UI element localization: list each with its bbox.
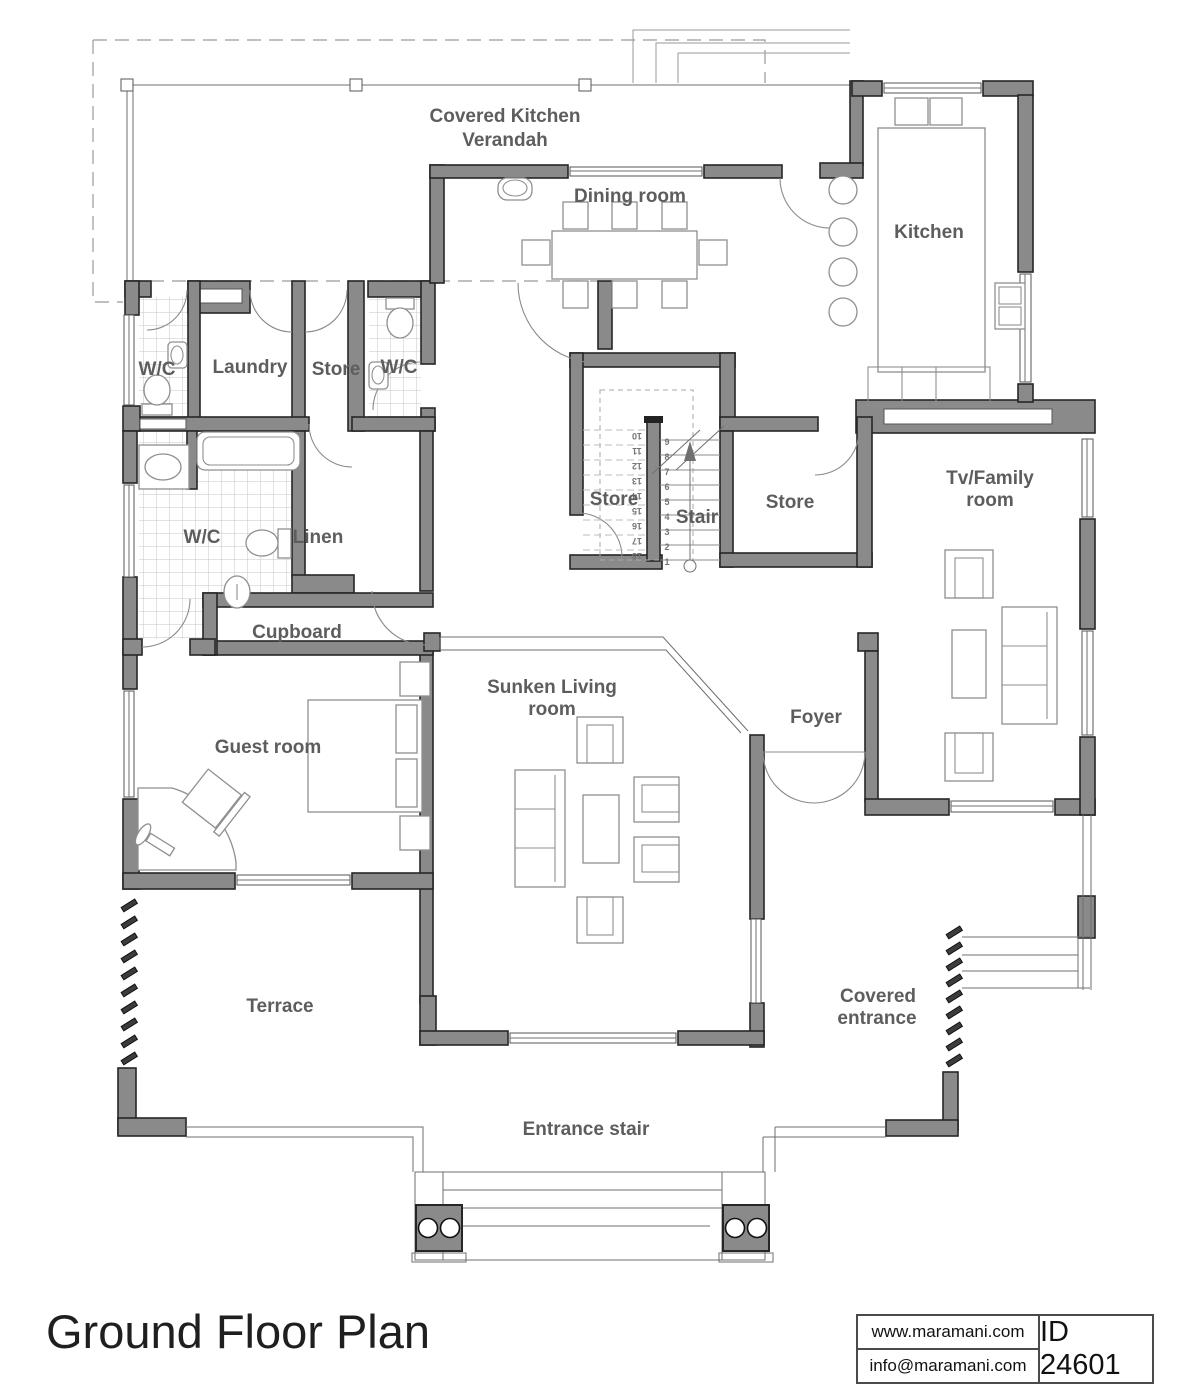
entrance-column-pedestal xyxy=(719,1205,773,1262)
verandah-column xyxy=(121,79,133,91)
wall-segment xyxy=(570,353,583,515)
wall-segment xyxy=(857,417,872,567)
stair-number: 17 xyxy=(632,536,642,546)
stair-number: 10 xyxy=(632,431,642,441)
wall-segment xyxy=(190,639,215,655)
door-arc xyxy=(250,290,292,332)
wall-cap xyxy=(644,416,663,423)
wall-segment xyxy=(352,873,433,889)
window xyxy=(951,801,1053,812)
wall-segment xyxy=(1080,737,1095,815)
verandah-column xyxy=(579,79,591,91)
floor-plan-page: 1 2 3 4 5 6 7 8 9 10 11 12 13 14 15 16 1… xyxy=(0,0,1200,1399)
label-dining-room: Dining room xyxy=(574,186,686,207)
label-guest-room: Guest room xyxy=(215,737,322,758)
wall-segment xyxy=(118,1118,186,1136)
entrance-column-pedestal xyxy=(412,1205,466,1262)
email-link: info@maramani.com xyxy=(858,1350,1038,1382)
toilet xyxy=(142,375,172,415)
label-stair: Stair xyxy=(676,507,719,528)
tv-cabinet-niche xyxy=(884,409,1052,424)
label-laundry: Laundry xyxy=(213,357,288,378)
window xyxy=(570,167,702,176)
website-link: www.maramani.com xyxy=(858,1316,1038,1350)
wall-segment xyxy=(188,281,200,431)
coffee-table xyxy=(952,630,986,698)
label-wc-top-left: W/C xyxy=(139,359,176,380)
wall-segment xyxy=(720,431,733,567)
label-covered-kitchen-verandah: Covered Kitchen xyxy=(430,106,581,127)
entrance-pier xyxy=(1078,896,1095,938)
wall-segment xyxy=(420,431,433,591)
stair-number: 16 xyxy=(632,521,642,531)
door-arc xyxy=(309,424,352,467)
wall-segment xyxy=(125,281,139,315)
window xyxy=(1082,631,1093,735)
stair-number: 18 xyxy=(632,551,642,561)
wall-segment xyxy=(424,633,440,651)
label-store-right: Store xyxy=(766,492,815,513)
stair-number: 12 xyxy=(632,461,642,471)
label-sunken-living-room: Sunken Living xyxy=(487,677,617,698)
wall-segment xyxy=(983,81,1033,96)
wall-segment xyxy=(420,1031,508,1045)
verandah-column xyxy=(350,79,362,91)
wall-segment xyxy=(348,281,364,431)
wall-segment xyxy=(123,639,142,655)
window xyxy=(510,1033,676,1043)
label-store-under-stair: Store xyxy=(590,489,639,510)
bidet xyxy=(224,576,250,608)
wall-segment xyxy=(704,165,782,178)
dining-sink xyxy=(498,178,532,200)
wall-segment xyxy=(886,1120,958,1136)
wall-segment xyxy=(865,651,878,801)
wall-segment xyxy=(598,281,612,349)
label-covered-entrance: Covered xyxy=(840,986,916,1007)
label-cupboard: Cupboard xyxy=(252,622,342,643)
label-terrace: Terrace xyxy=(246,996,313,1017)
stair-number: 9 xyxy=(664,437,669,447)
window xyxy=(237,875,350,885)
bathtub xyxy=(197,432,300,470)
armchair xyxy=(634,837,679,882)
entrance-edge-hatching xyxy=(946,926,962,1067)
wall-segment xyxy=(352,417,435,431)
floor-plan-drawing: 1 2 3 4 5 6 7 8 9 10 11 12 13 14 15 16 1… xyxy=(0,0,1200,1296)
entrance-double-door xyxy=(763,752,865,803)
plan-info-box: www.maramani.com info@maramani.com ID 24… xyxy=(856,1314,1154,1384)
wall-segment xyxy=(678,1031,764,1045)
wall-segment xyxy=(858,633,878,651)
sofa xyxy=(1002,607,1057,724)
wall-segment xyxy=(203,641,433,655)
wall-segment xyxy=(430,165,568,178)
wall-segment xyxy=(865,799,949,815)
toilet xyxy=(246,529,291,558)
wall-segment xyxy=(421,281,435,364)
label-entrance-stair: Entrance stair xyxy=(523,1119,650,1140)
label-linen: Linen xyxy=(293,527,344,548)
wall-segment xyxy=(123,431,137,483)
armchair xyxy=(945,550,993,598)
armchair xyxy=(577,717,623,763)
stair-number: 2 xyxy=(664,542,669,552)
door-arc xyxy=(815,431,859,475)
wall-segment xyxy=(123,873,235,889)
label-foyer: Foyer xyxy=(790,707,842,728)
label-tv-family-room: Tv/Family xyxy=(946,468,1034,489)
stair-number: 4 xyxy=(664,512,669,522)
label-wc-main: W/C xyxy=(184,527,221,548)
coffee-table xyxy=(583,795,619,863)
wall-segment xyxy=(1018,384,1033,402)
desk xyxy=(132,766,250,870)
stair-number: 8 xyxy=(664,452,669,462)
stair-number: 13 xyxy=(632,476,642,486)
wall-segment xyxy=(570,353,735,367)
armchair xyxy=(945,733,993,781)
dining-table xyxy=(522,202,727,308)
bed xyxy=(308,662,430,850)
wall-segment xyxy=(123,406,140,431)
armchair xyxy=(634,777,679,822)
terrace-edge-hatching xyxy=(121,899,137,1065)
wall-segment xyxy=(1080,519,1095,629)
label-covered-entrance: entrance xyxy=(837,1008,916,1029)
stair-number: 3 xyxy=(664,527,669,537)
wall-segment xyxy=(123,577,137,689)
wall-segment xyxy=(852,81,882,96)
window xyxy=(124,315,134,405)
armchair xyxy=(577,897,623,943)
wall-segment xyxy=(292,281,305,431)
label-kitchen: Kitchen xyxy=(894,222,964,243)
window xyxy=(751,919,761,1003)
stair-number: 1 xyxy=(664,557,669,567)
wall-segment xyxy=(292,575,354,593)
stair-number: 6 xyxy=(664,482,669,492)
contact-info: www.maramani.com info@maramani.com xyxy=(858,1316,1040,1382)
wall-segment xyxy=(430,165,444,283)
stair-number: 5 xyxy=(664,497,669,507)
label-wc-top-right: W/C xyxy=(381,357,418,378)
toilet xyxy=(386,298,414,338)
window xyxy=(124,691,134,797)
refrigerator xyxy=(995,283,1025,329)
window xyxy=(124,485,134,577)
footer: Ground Floor Plan www.maramani.com info@… xyxy=(0,1296,1200,1399)
window xyxy=(884,83,981,93)
stair-direction-line xyxy=(652,426,724,572)
wall-segment xyxy=(1018,95,1033,272)
stair-number: 11 xyxy=(632,446,642,456)
door-arc xyxy=(305,290,347,332)
label-tv-family-room: room xyxy=(966,490,1014,511)
sink xyxy=(139,445,189,489)
label-store-top: Store xyxy=(312,359,361,380)
door-arc xyxy=(780,178,830,228)
plan-id: ID 24601 xyxy=(1040,1316,1152,1382)
wall-segment xyxy=(750,735,764,919)
wall-segment xyxy=(720,553,872,567)
page-title: Ground Floor Plan xyxy=(46,1304,430,1359)
window xyxy=(1082,439,1093,517)
laundry-counter-niche xyxy=(196,289,242,303)
label-covered-kitchen-verandah: Verandah xyxy=(462,130,548,151)
window xyxy=(140,419,186,429)
wall-segment xyxy=(647,421,660,561)
label-sunken-living-room: room xyxy=(528,699,576,720)
bar-stools xyxy=(829,176,857,326)
entrance-stair-steps xyxy=(415,1172,765,1260)
sofa xyxy=(515,770,565,887)
wall-segment xyxy=(720,417,818,431)
stair-number: 7 xyxy=(664,467,669,477)
